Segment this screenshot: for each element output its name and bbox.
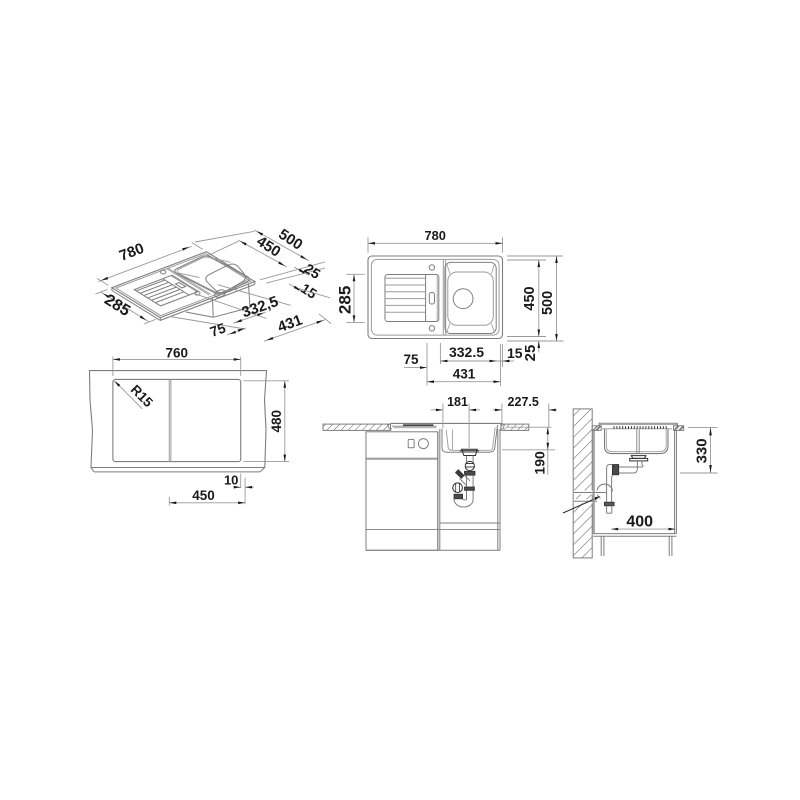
svg-text:760: 760	[166, 345, 189, 360]
svg-text:75: 75	[403, 352, 419, 367]
svg-text:400: 400	[626, 513, 653, 530]
svg-text:450: 450	[192, 488, 215, 503]
svg-text:450: 450	[522, 286, 538, 310]
svg-text:285: 285	[335, 286, 354, 314]
svg-text:500: 500	[540, 291, 556, 315]
svg-text:190: 190	[531, 451, 547, 475]
svg-text:181: 181	[447, 395, 468, 409]
svg-text:15: 15	[507, 345, 523, 361]
svg-text:10: 10	[224, 472, 238, 487]
svg-text:431: 431	[453, 366, 476, 381]
svg-text:330: 330	[693, 438, 710, 463]
svg-text:332.5: 332.5	[449, 344, 484, 360]
svg-text:25: 25	[522, 345, 539, 362]
svg-text:780: 780	[425, 228, 446, 243]
svg-text:227.5: 227.5	[508, 395, 539, 409]
svg-text:480: 480	[269, 410, 284, 433]
